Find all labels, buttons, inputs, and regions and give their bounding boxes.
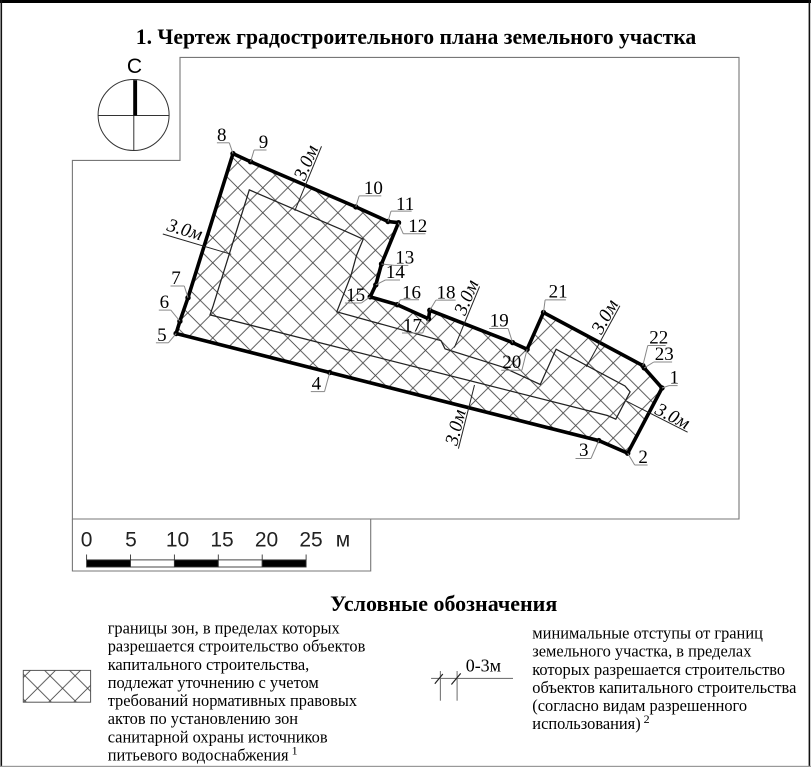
svg-text:12: 12 bbox=[408, 216, 427, 237]
svg-text:10: 10 bbox=[364, 178, 383, 199]
svg-text:1: 1 bbox=[670, 368, 680, 389]
svg-text:6: 6 bbox=[160, 292, 170, 313]
svg-text:м: м bbox=[336, 529, 350, 552]
svg-text:1. Чертеж градостроительного п: 1. Чертеж градостроительного плана земел… bbox=[136, 25, 697, 49]
svg-text:С: С bbox=[127, 55, 142, 78]
svg-text:15: 15 bbox=[210, 529, 233, 552]
svg-text:0-3м: 0-3м bbox=[466, 656, 501, 676]
svg-text:25: 25 bbox=[299, 529, 322, 552]
svg-text:11: 11 bbox=[396, 194, 414, 215]
svg-text:5: 5 bbox=[157, 325, 167, 346]
svg-text:20: 20 bbox=[502, 352, 521, 373]
svg-text:21: 21 bbox=[549, 281, 568, 302]
svg-text:20: 20 bbox=[255, 529, 278, 552]
svg-text:земельного участка, в пределах: земельного участка, в пределах bbox=[532, 642, 751, 661]
svg-text:5: 5 bbox=[125, 529, 137, 552]
svg-text:актов по установлению зон: актов по установлению зон bbox=[108, 709, 299, 728]
svg-text:8: 8 bbox=[217, 125, 227, 146]
svg-text:Условные обозначения: Условные обозначения bbox=[330, 591, 557, 616]
svg-text:использования) 2: использования) 2 bbox=[532, 712, 649, 733]
svg-text:объектов капитального строител: объектов капитального строительства bbox=[532, 678, 797, 697]
svg-text:3: 3 bbox=[579, 440, 589, 461]
svg-text:16: 16 bbox=[402, 283, 421, 304]
svg-text:0: 0 bbox=[81, 529, 93, 552]
svg-text:9: 9 bbox=[259, 132, 269, 153]
svg-text:23: 23 bbox=[655, 344, 674, 365]
svg-text:7: 7 bbox=[171, 268, 181, 289]
svg-text:границы зон, в пределах которы: границы зон, в пределах которых bbox=[108, 619, 340, 638]
svg-text:требований нормативных правовы: требований нормативных правовых bbox=[108, 691, 357, 710]
svg-text:4: 4 bbox=[312, 374, 322, 395]
svg-text:10: 10 bbox=[166, 529, 189, 552]
svg-text:18: 18 bbox=[437, 283, 456, 304]
svg-text:подлежат уточнению с учетом: подлежат уточнению с учетом bbox=[108, 673, 319, 692]
svg-text:2: 2 bbox=[638, 447, 648, 468]
svg-text:разрешается строительство объе: разрешается строительство объектов bbox=[108, 637, 366, 656]
svg-text:капитального строительства,: капитального строительства, bbox=[108, 655, 310, 674]
svg-text:минимальные отступы от границ: минимальные отступы от границ bbox=[532, 624, 763, 643]
svg-text:питьевого водоснабжения 1: питьевого водоснабжения 1 bbox=[108, 744, 298, 765]
svg-text:14: 14 bbox=[386, 262, 406, 283]
svg-text:19: 19 bbox=[490, 310, 509, 331]
svg-text:17: 17 bbox=[403, 315, 422, 336]
svg-text:которых разрешается строительс: которых разрешается строительство bbox=[532, 660, 785, 679]
svg-text:15: 15 bbox=[346, 285, 365, 306]
